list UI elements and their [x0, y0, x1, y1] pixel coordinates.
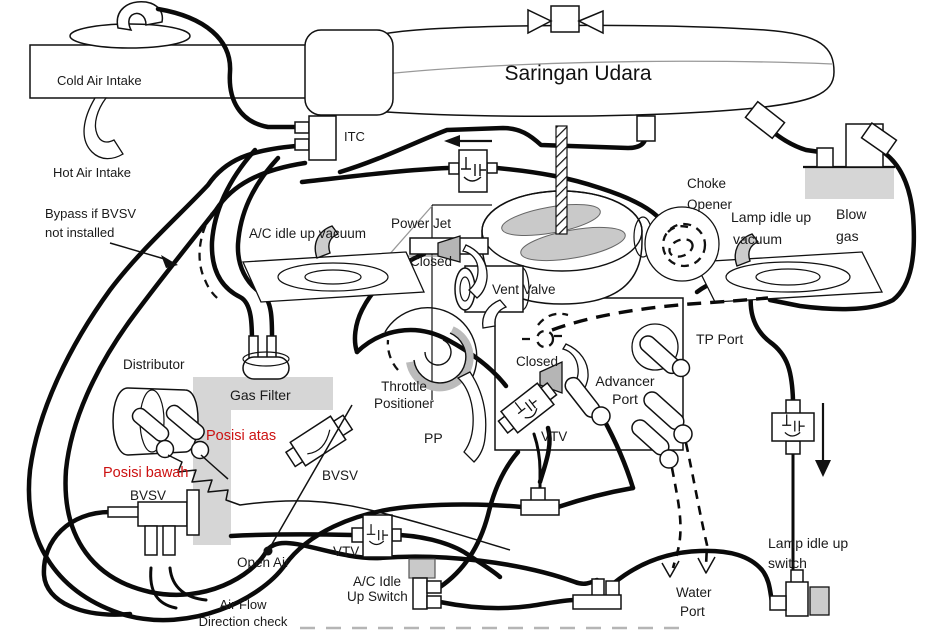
label-advancer-port: Port: [612, 391, 638, 407]
label-air-flow: Direction check: [199, 614, 288, 629]
air-cleaner-snout: [305, 30, 393, 115]
check-valve-top: [449, 150, 497, 192]
label-advancer-port: Advancer: [595, 373, 654, 389]
label-bvsv-center: BVSV: [322, 468, 358, 483]
label-ac-idle-up-vacuum: A/C idle up vacuum: [249, 226, 366, 241]
vtv-valve-right: [772, 400, 814, 454]
label-posisi-atas: Posisi atas: [206, 428, 276, 444]
label-throttle-positioner: Positioner: [374, 396, 435, 411]
vtv-valve-left: [352, 515, 401, 557]
label-closed-top: Closed: [410, 254, 452, 269]
label-cold-air-intake: Cold Air Intake: [57, 73, 142, 88]
diagram-canvas: Cold Air Intake Hot Air Intake Saringan …: [0, 0, 942, 630]
label-distributor: Distributor: [123, 357, 185, 372]
label-choke-opener: Choke: [687, 176, 726, 191]
label-closed-mid: Closed: [516, 354, 558, 369]
label-water-port: Water: [676, 585, 712, 600]
label-vtv-center: VTV: [541, 429, 567, 444]
hot-air-elbow: [84, 98, 123, 159]
label-gas-filter: Gas Filter: [230, 387, 291, 403]
gas-filter: [243, 336, 289, 379]
label-lamp-idle-switch: Lamp idle up: [768, 535, 848, 551]
label-power-jet: Power Jet: [391, 216, 451, 231]
label-lamp-idle-vacuum: vacuum: [733, 231, 782, 247]
blow-gas-shade: [805, 166, 894, 199]
label-air-flow: Air Flow: [220, 597, 268, 612]
flow-arrow-left: [444, 135, 492, 147]
blow-gas-fittings: [803, 123, 896, 167]
label-open-air: Open Air: [237, 555, 290, 570]
ac-idle-up-switch: [409, 559, 441, 609]
label-posisi-bawah: Posisi bawah: [103, 465, 188, 481]
label-hot-air-intake: Hot Air Intake: [53, 165, 131, 180]
label-water-port: Port: [680, 604, 705, 619]
air-cleaner-stud: [556, 126, 567, 234]
air-cleaner-port: [637, 116, 655, 141]
itc-valve: [295, 116, 336, 160]
lamp-idle-up-diaphragm: [695, 234, 882, 302]
label-blow-gas: Blow: [836, 206, 867, 222]
choke-opener-diaphragm: [634, 207, 719, 281]
label-vtv-left: VTV: [333, 544, 359, 559]
label-itc: ITC: [344, 129, 365, 144]
label-vent-valve: Vent Valve: [492, 282, 556, 297]
label-bvsv-left: BVSV: [130, 488, 166, 503]
vacuum-routing-diagram: Cold Air Intake Hot Air Intake Saringan …: [0, 0, 942, 630]
label-tp-port: TP Port: [696, 331, 743, 347]
label-bypass: not installed: [45, 225, 114, 240]
label-throttle-positioner: Throttle: [381, 379, 427, 394]
label-blow-gas: gas: [836, 228, 859, 244]
lamp-idle-up-switch: [770, 570, 829, 616]
label-pp: PP: [424, 430, 443, 446]
label-bypass: Bypass if BVSV: [45, 206, 136, 221]
label-ac-idle-switch: A/C Idle: [353, 574, 401, 589]
label-lamp-idle-switch: switch: [768, 555, 807, 571]
label-ac-idle-switch: Up Switch: [347, 589, 408, 604]
flow-arrow-down: [815, 403, 831, 477]
distributor-vacuum-unit: [113, 388, 209, 459]
tee-fitting: [521, 488, 559, 515]
label-lamp-idle-vacuum: Lamp idle up: [731, 209, 811, 225]
linkage-band: [458, 372, 486, 462]
label-choke-opener: Opener: [687, 197, 733, 212]
label-saringan-udara: Saringan Udara: [504, 62, 651, 85]
